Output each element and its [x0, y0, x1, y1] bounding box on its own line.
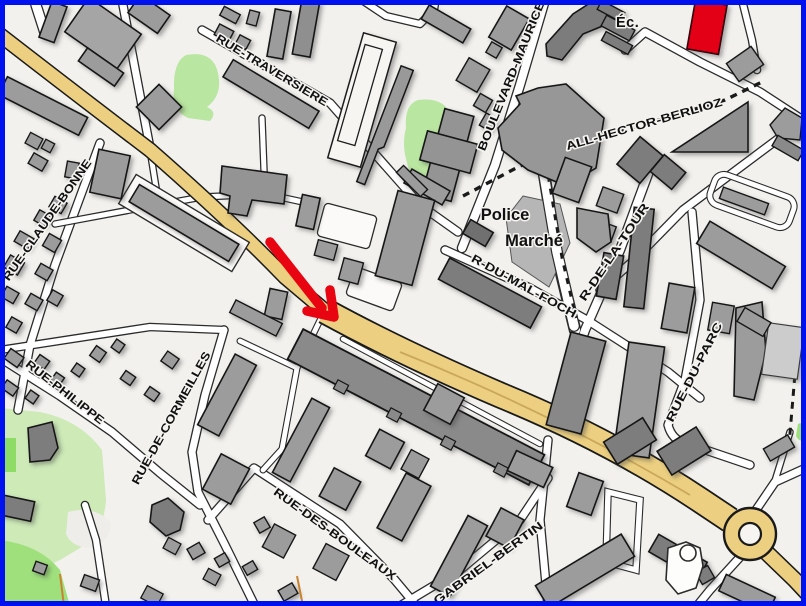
svg-text:Éc.: Éc. — [616, 14, 639, 31]
svg-text:Police: Police — [481, 206, 530, 224]
svg-text:Marché: Marché — [505, 232, 563, 250]
